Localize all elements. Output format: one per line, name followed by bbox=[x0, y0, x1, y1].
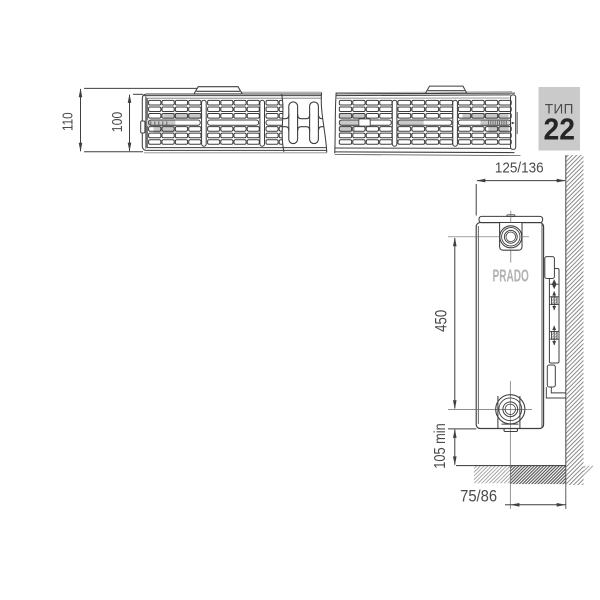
svg-text:PRADO: PRADO bbox=[493, 267, 529, 287]
svg-text:105 min: 105 min bbox=[432, 423, 450, 468]
svg-text:450: 450 bbox=[432, 310, 451, 332]
svg-text:110: 110 bbox=[59, 112, 75, 131]
svg-text:75/86: 75/86 bbox=[460, 487, 497, 505]
svg-text:22: 22 bbox=[544, 112, 576, 147]
svg-text:125/136: 125/136 bbox=[495, 160, 544, 177]
svg-text:100: 100 bbox=[109, 112, 125, 132]
